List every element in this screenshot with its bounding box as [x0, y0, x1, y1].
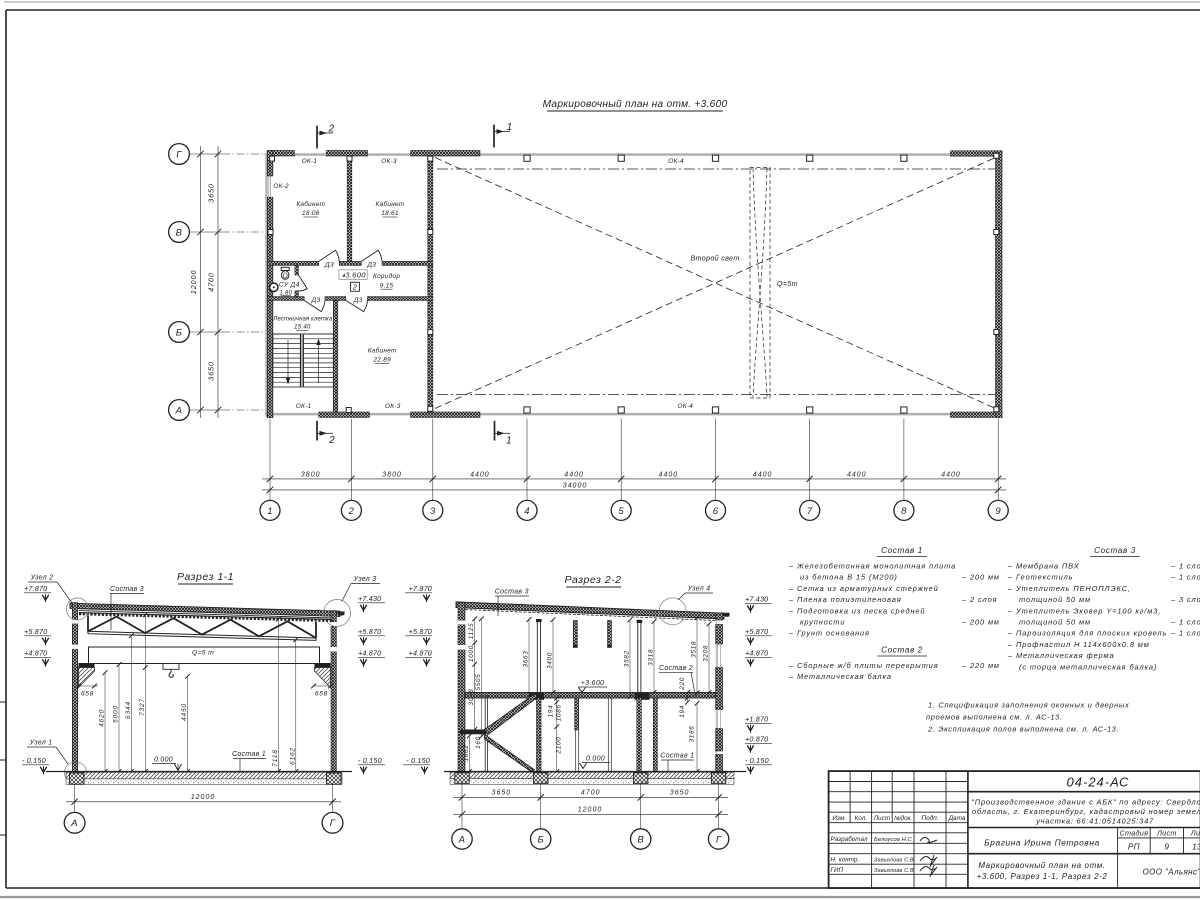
svg-text:– 3 слоя: – 3 слоя: [1170, 595, 1200, 604]
svg-text:"Производственное здание с АБК: "Производственное здание с АБК" по адрес…: [971, 798, 1200, 807]
svg-text:3.600: 3.600: [345, 270, 366, 279]
svg-text:– Профнастил Н 114х600х0.8 мм: – Профнастил Н 114х600х0.8 мм: [1007, 640, 1150, 649]
svg-text:Белоусов Н.С: Белоусов Н.С: [874, 837, 913, 843]
svg-text:– Металлическая балка: – Металлическая балка: [788, 672, 892, 681]
svg-text:Состав 2: Состав 2: [659, 665, 693, 672]
svg-text:12000: 12000: [191, 794, 215, 801]
svg-text:5000: 5000: [113, 705, 120, 723]
svg-text:3650: 3650: [207, 183, 216, 203]
svg-text:0.000: 0.000: [154, 757, 173, 764]
svg-text:Г: Г: [716, 834, 722, 845]
svg-text:3518: 3518: [691, 641, 698, 658]
svg-text:– Геотекстиль: – Геотекстиль: [1007, 573, 1073, 582]
svg-text:4400: 4400: [753, 471, 773, 478]
svg-text:– 200 мм: – 200 мм: [961, 618, 1000, 627]
svg-text:Q=5т: Q=5т: [777, 279, 798, 288]
svg-text:А: А: [458, 834, 466, 845]
svg-text:+3.600: +3.600: [581, 680, 604, 687]
svg-text:194: 194: [679, 705, 686, 718]
svg-text:4700: 4700: [207, 272, 216, 292]
svg-text:- 0.150: - 0.150: [745, 756, 769, 765]
svg-text:9: 9: [995, 506, 1001, 517]
svg-text:Лист: Лист: [1156, 828, 1177, 837]
svg-text:Разрез 1-1: Разрез 1-1: [177, 571, 234, 583]
svg-text:4400: 4400: [470, 471, 490, 478]
svg-text:+1.870: +1.870: [745, 715, 768, 724]
svg-text:7118: 7118: [272, 749, 279, 766]
svg-text:6162: 6162: [289, 747, 296, 765]
svg-text:658: 658: [81, 691, 94, 698]
svg-text:+7.430: +7.430: [358, 594, 381, 603]
svg-text:Д3: Д3: [311, 297, 321, 304]
svg-text:из бетона В 15 (М200): из бетона В 15 (М200): [800, 573, 898, 582]
svg-text:ОК-2: ОК-2: [273, 183, 289, 190]
svg-text:+5.870: +5.870: [358, 627, 381, 636]
svg-text:+7.870: +7.870: [409, 584, 432, 593]
svg-text:2: 2: [328, 435, 335, 446]
svg-text:6344: 6344: [125, 701, 132, 719]
svg-text:Завьялова С.В: Завьялова С.В: [874, 868, 914, 874]
svg-text:7: 7: [807, 506, 813, 517]
svg-text:4400: 4400: [564, 471, 584, 478]
svg-text:Разрез 2-2: Разрез 2-2: [564, 574, 621, 586]
svg-text:3650: 3650: [492, 790, 512, 797]
svg-text:Маркировочный план на отм. +3.: Маркировочный план на отм. +3.600: [543, 99, 728, 110]
svg-text:3400: 3400: [547, 652, 554, 669]
svg-text:Q=5 т: Q=5 т: [192, 650, 214, 657]
svg-text:Узел 4: Узел 4: [687, 586, 711, 593]
svg-text:+4.870: +4.870: [409, 649, 432, 658]
svg-text:ОК-4: ОК-4: [677, 403, 693, 410]
svg-text:4700: 4700: [581, 790, 601, 797]
svg-text:– Пленка полиэтиленовая: – Пленка полиэтиленовая: [788, 595, 902, 604]
svg-text:Брагина Ирина Петровна: Брагина Ирина Петровна: [984, 838, 1100, 848]
svg-text:– Мембрана ПВХ: – Мембрана ПВХ: [1007, 562, 1080, 571]
svg-text:Н. контр.: Н. контр.: [831, 857, 860, 864]
svg-text:1662: 1662: [463, 744, 470, 761]
svg-text:– Утеплитель Эковер Y=100 кг/м: – Утеплитель Эковер Y=100 кг/м3,: [1007, 606, 1161, 615]
svg-text:5505: 5505: [475, 673, 482, 690]
svg-text:Кабинет: Кабинет: [296, 200, 325, 208]
svg-text:3582: 3582: [624, 650, 631, 667]
svg-text:+7.430: +7.430: [745, 595, 768, 604]
svg-text:3800: 3800: [301, 471, 321, 478]
svg-text:04-24-АС: 04-24-АС: [1067, 775, 1130, 790]
svg-text:3800: 3800: [382, 471, 402, 478]
svg-text:Состав 3: Состав 3: [495, 589, 529, 596]
svg-text:- 0.150: - 0.150: [358, 756, 382, 765]
svg-text:Состав 3: Состав 3: [110, 586, 144, 593]
svg-text:Лис: Лис: [1190, 828, 1200, 837]
svg-text:Лестничная клетка: Лестничная клетка: [272, 316, 333, 322]
svg-text:– 1 слой: – 1 слой: [1170, 618, 1200, 627]
svg-text:- 0.150: - 0.150: [22, 756, 46, 765]
svg-text:А: А: [175, 405, 183, 416]
svg-text:2: 2: [328, 124, 335, 135]
svg-text:– Металлическая ферма: – Металлическая ферма: [1007, 651, 1115, 660]
svg-text:ОК-3: ОК-3: [381, 158, 397, 165]
svg-text:Состав 1: Состав 1: [232, 751, 266, 758]
svg-text:12000: 12000: [578, 807, 602, 814]
svg-text:160: 160: [475, 736, 482, 749]
svg-text:Состав 1: Состав 1: [881, 546, 923, 555]
svg-text:Д3: Д3: [366, 262, 376, 269]
svg-text:2. Экспликация полов выполнена: 2. Экспликация полов выполнена см. л. АС…: [927, 725, 1119, 734]
svg-text:3650: 3650: [207, 361, 216, 381]
svg-text:3208: 3208: [703, 645, 710, 662]
svg-text:Стадия: Стадия: [1120, 828, 1149, 837]
svg-text:18.08: 18.08: [302, 210, 320, 217]
svg-text:Узел 1: Узел 1: [29, 740, 53, 747]
svg-text:3: 3: [430, 506, 436, 517]
svg-text:ГИП: ГИП: [831, 867, 844, 874]
svg-text:658: 658: [315, 691, 328, 698]
svg-text:194: 194: [548, 705, 555, 718]
svg-text:5: 5: [618, 506, 624, 517]
svg-text:- 0.150: - 0.150: [406, 756, 430, 765]
svg-text:3663: 3663: [523, 650, 530, 667]
svg-text:+3.600, Разрез 1-1, Разрез 2-2: +3.600, Разрез 1-1, Разрез 2-2: [977, 872, 1108, 881]
svg-text:2: 2: [348, 506, 355, 517]
svg-text:3318: 3318: [648, 649, 655, 666]
svg-text:4400: 4400: [847, 471, 867, 478]
svg-text:Маркировочный план на отм.: Маркировочный план на отм.: [978, 861, 1105, 870]
svg-text:Г: Г: [176, 149, 182, 160]
svg-text:ОК-1: ОК-1: [302, 158, 318, 165]
svg-text:№док.: №док.: [894, 815, 912, 822]
svg-text:Узел 2: Узел 2: [30, 575, 54, 582]
svg-text:9.15: 9.15: [380, 282, 394, 289]
svg-text:2100: 2100: [555, 736, 562, 754]
svg-text:2: 2: [352, 283, 358, 292]
svg-text:Коридор: Коридор: [373, 272, 400, 280]
svg-text:– 200 мм: – 200 мм: [961, 573, 1000, 582]
svg-text:В: В: [176, 227, 183, 238]
svg-text:Кабинет: Кабинет: [368, 347, 397, 355]
svg-text:– Утеплитель ПЕНОПЛЭКС,: – Утеплитель ПЕНОПЛЭКС,: [1007, 584, 1131, 593]
svg-text:0.000: 0.000: [586, 756, 605, 763]
svg-text:– Пароизоляция для плоских кро: – Пароизоляция для плоских кровель: [1007, 629, 1167, 638]
svg-text:220: 220: [679, 677, 686, 691]
svg-text:8: 8: [901, 506, 907, 517]
svg-text:Изм.: Изм.: [832, 815, 846, 822]
svg-text:А: А: [70, 818, 78, 829]
svg-text:+5.870: +5.870: [409, 627, 432, 636]
svg-text:ОК-1: ОК-1: [296, 403, 312, 410]
svg-text:+4.870: +4.870: [745, 649, 768, 658]
svg-text:18.61: 18.61: [381, 210, 399, 217]
svg-text:– 2 слоя: – 2 слоя: [961, 595, 997, 604]
svg-text:толщиной 50 мм: толщиной 50 мм: [1019, 595, 1091, 604]
svg-text:В: В: [637, 834, 644, 845]
svg-text:22.89: 22.89: [372, 357, 391, 364]
svg-text:ООО "Альянс": ООО "Альянс": [1143, 868, 1200, 877]
svg-text:3186: 3186: [688, 725, 695, 742]
svg-text:1000: 1000: [468, 645, 475, 662]
svg-text:1. Спецификация заполнения око: 1. Спецификация заполнения оконных и две…: [928, 701, 1129, 710]
svg-text:– Грунт основания: – Грунт основания: [788, 629, 870, 638]
svg-text:Второй свет: Второй свет: [690, 254, 739, 263]
svg-text:1: 1: [267, 506, 273, 517]
svg-text:– Подготовка из песка средней: – Подготовка из песка средней: [788, 606, 925, 615]
svg-text:Дата: Дата: [948, 815, 966, 822]
svg-text:СУ Д4: СУ Д4: [279, 281, 300, 288]
svg-text:Завьялова С.В: Завьялова С.В: [874, 858, 914, 864]
svg-text:+4.870: +4.870: [358, 649, 381, 658]
svg-text:– 220 мм: – 220 мм: [961, 661, 1000, 670]
svg-text:4450: 4450: [181, 703, 188, 721]
svg-text:6: 6: [713, 506, 719, 517]
svg-text:1086: 1086: [555, 704, 562, 721]
svg-text:– Сетка из арматурных стержней: – Сетка из арматурных стержней: [788, 584, 939, 593]
svg-text:3650: 3650: [670, 790, 690, 797]
svg-text:+5.870: +5.870: [745, 627, 768, 636]
svg-text:Б: Б: [537, 834, 543, 845]
svg-text:1125: 1125: [468, 623, 475, 640]
svg-text:Состав 3: Состав 3: [1094, 546, 1136, 555]
svg-text:9: 9: [1164, 843, 1169, 852]
svg-text:34000: 34000: [563, 483, 587, 490]
svg-text:ОК-4: ОК-4: [668, 158, 684, 165]
svg-text:4400: 4400: [659, 471, 679, 478]
svg-text:Кабинет: Кабинет: [376, 200, 405, 208]
svg-text:4: 4: [524, 506, 530, 517]
svg-text:Лист: Лист: [873, 815, 891, 822]
svg-text:Д3: Д3: [353, 297, 363, 304]
svg-text:Д3: Д3: [324, 262, 334, 269]
svg-text:+0.870: +0.870: [745, 735, 768, 744]
svg-text:– 1 слой: – 1 слой: [1170, 562, 1200, 571]
svg-text:– 1 слой: – 1 слой: [1170, 573, 1200, 582]
svg-text:15.40: 15.40: [294, 325, 311, 331]
svg-text:– 1 слой: – 1 слой: [1170, 629, 1200, 638]
svg-text:+7.870: +7.870: [24, 584, 47, 593]
svg-text:Состав 2: Состав 2: [881, 646, 923, 655]
svg-text:1: 1: [507, 122, 513, 133]
svg-text:РП: РП: [1128, 843, 1140, 852]
svg-text:Узел 3: Узел 3: [353, 576, 377, 583]
svg-text:(с торца металлическая балка): (с торца металлическая балка): [1019, 662, 1157, 671]
svg-text:крупности: крупности: [800, 618, 845, 627]
svg-text:Г: Г: [330, 818, 336, 829]
svg-text:+5.870: +5.870: [24, 627, 47, 636]
svg-text:Б: Б: [176, 327, 182, 338]
svg-text:участка: 66:41:0514025:347: участка: 66:41:0514025:347: [1035, 817, 1154, 826]
svg-text:– Сборные ж/б плиты перекрытия: – Сборные ж/б плиты перекрытия: [788, 661, 939, 670]
svg-text:проемов выполнена см. л. АС-13: проемов выполнена см. л. АС-13.: [926, 713, 1063, 722]
svg-text:12000: 12000: [189, 270, 198, 295]
svg-text:ОК-3: ОК-3: [385, 403, 401, 410]
svg-text:4400: 4400: [941, 471, 961, 478]
svg-text:4620: 4620: [99, 709, 106, 727]
svg-text:1: 1: [506, 436, 512, 447]
svg-text:Состав 1: Состав 1: [660, 753, 694, 760]
svg-text:– Железобетонная монолитная п: – Железобетонная монолитная плита: [788, 562, 956, 571]
svg-text:Разработал: Разработал: [831, 836, 868, 843]
svg-text:Кол.: Кол.: [855, 815, 868, 822]
svg-text:толщиной 50 мм: толщиной 50 мм: [1019, 618, 1091, 627]
svg-text:+4.870: +4.870: [24, 649, 47, 658]
svg-text:7327: 7327: [139, 698, 146, 716]
svg-text:область, г. Екатеринбург, када: область, г. Екатеринбург, кадастровый но…: [972, 807, 1200, 816]
svg-text:Подп.: Подп.: [921, 814, 938, 822]
svg-text:13: 13: [1192, 843, 1200, 852]
